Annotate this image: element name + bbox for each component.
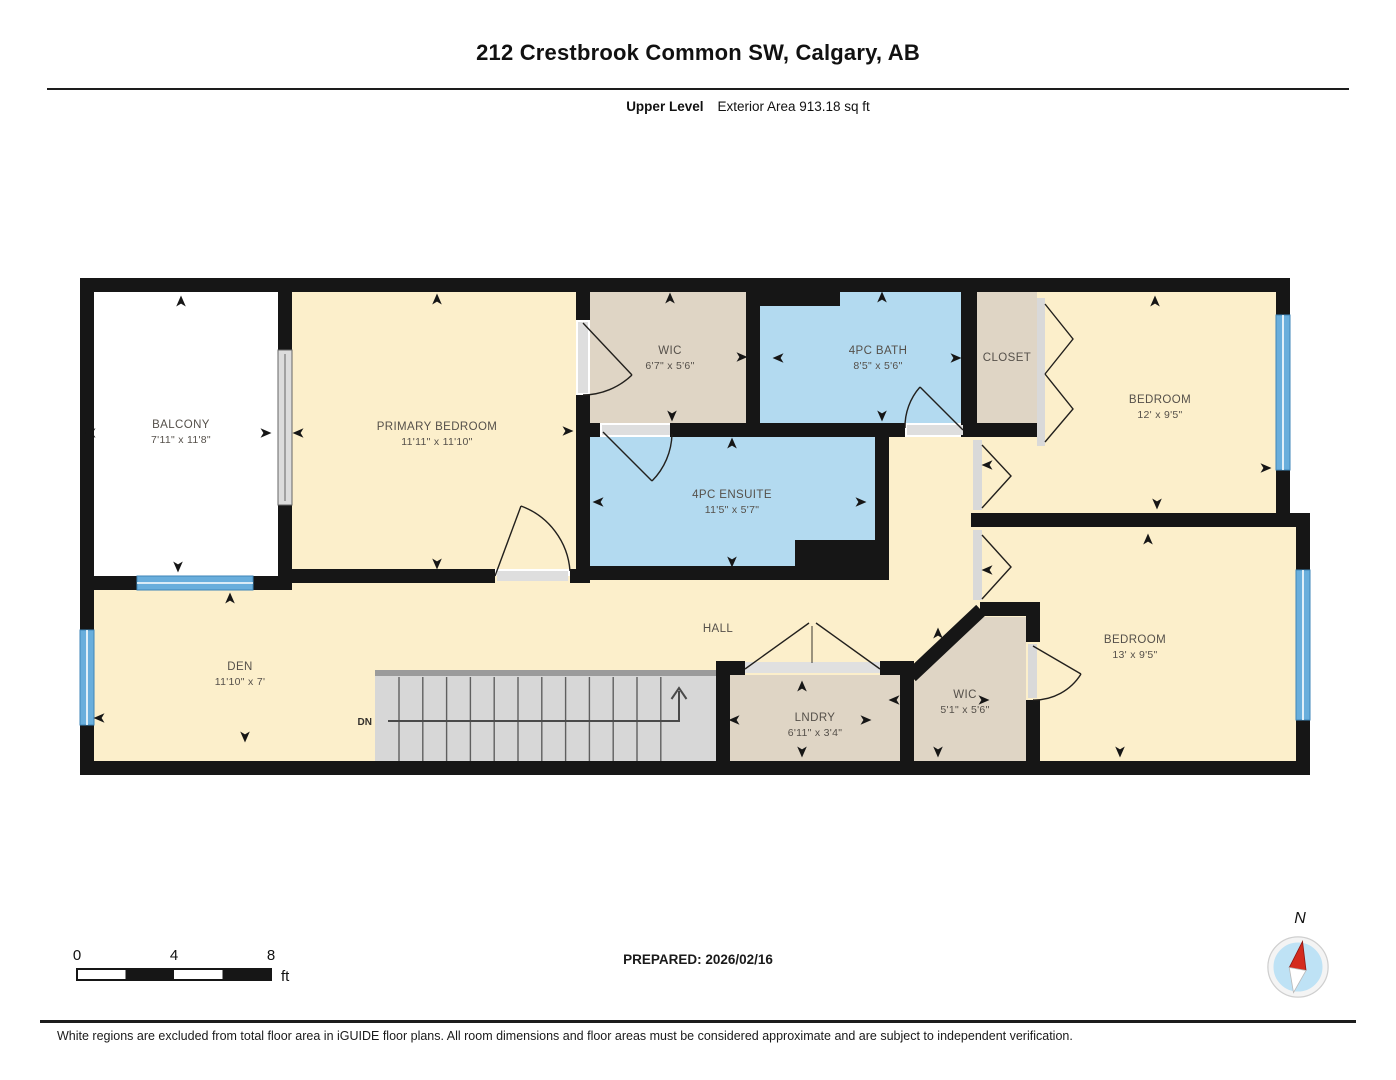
disclaimer-text: White regions are excluded from total fl… (57, 1029, 1357, 1043)
room-dims-primary-bedroom: 11'11" x 11'10" (401, 436, 472, 448)
stairs: DN (358, 670, 716, 761)
compass: N (1251, 903, 1345, 1013)
scale-unit-label: ft (281, 968, 290, 985)
bedroom-top-window (1276, 315, 1290, 470)
room-dims-bath: 8'5" x 5'6" (853, 360, 902, 372)
room-label-bath: 4PC BATH (849, 345, 908, 357)
room-dims-wic-top: 6'7" x 5'6" (645, 360, 694, 372)
plan-subtitle: Upper LevelExterior Area 913.18 sq ft (50, 99, 1396, 114)
room-label-ensuite: 4PC ENSUITE (692, 489, 772, 501)
room-dims-balcony: 7'11" x 11'8" (151, 434, 211, 446)
balcony-window (137, 576, 253, 590)
room-label-den: DEN (227, 661, 252, 673)
room-label-wic-top: WIC (658, 345, 682, 357)
balcony-sliding-door (278, 350, 292, 505)
floor-plan: DN (75, 270, 1320, 785)
room-label-primary-bedroom: PRIMARY BEDROOM (377, 421, 498, 433)
room-label-bedroom-top: BEDROOM (1129, 394, 1191, 406)
floorplan-page: { "header": { "title": "212 Crestbrook C… (0, 0, 1396, 1080)
room-dims-wic-bottom: 5'1" x 5'6" (940, 704, 989, 716)
room-dims-den: 11'10" x 7' (215, 676, 266, 688)
room-label-wic-bottom: WIC (953, 689, 977, 701)
room-label-lndry: LNDRY (795, 712, 836, 724)
room-label-bedroom-bottom: BEDROOM (1104, 634, 1166, 646)
prepared-date-label: PREPARED: 2026/02/16 (0, 952, 1396, 967)
bedroom-bottom-window (1296, 570, 1310, 720)
room-label-balcony: BALCONY (152, 419, 210, 431)
level-label: Upper Level (626, 99, 703, 114)
compass-north-label: N (1294, 910, 1306, 927)
floor-plan-svg: DN (75, 270, 1320, 785)
room-dims-ensuite: 11'5" x 5'7" (705, 504, 760, 516)
room-dims-lndry: 6'11" x 3'4" (788, 727, 843, 739)
stairs-dn-label: DN (358, 717, 372, 728)
room-dims-bedroom-top: 12' x 9'5" (1137, 409, 1182, 421)
page-title: 212 Crestbrook Common SW, Calgary, AB (0, 40, 1396, 66)
footer-divider-line (40, 1020, 1356, 1023)
header-divider-line (47, 88, 1349, 90)
den-window (80, 630, 94, 725)
exterior-area-label: Exterior Area 913.18 sq ft (717, 99, 869, 114)
room-label-hall: HALL (703, 623, 734, 635)
room-dims-bedroom-bottom: 13' x 9'5" (1112, 649, 1157, 661)
room-label-closet: CLOSET (983, 352, 1031, 364)
